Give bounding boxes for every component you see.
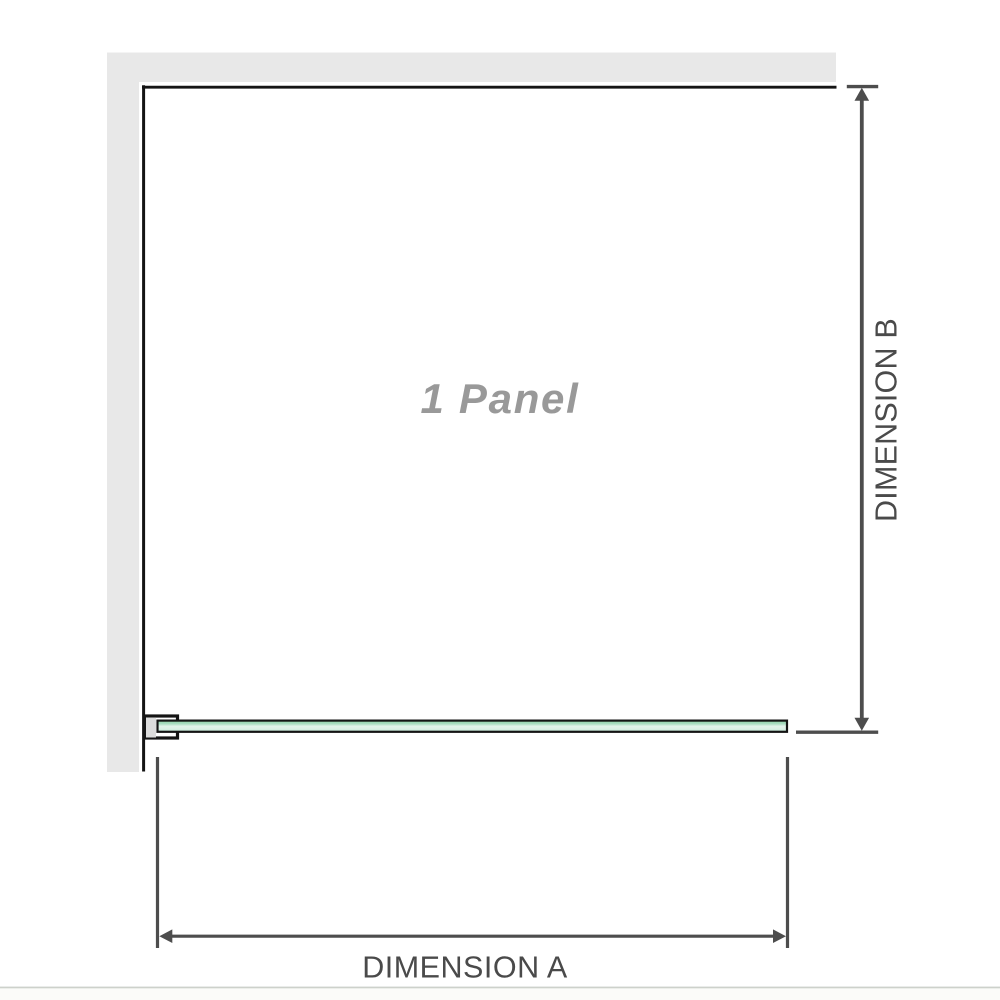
svg-text:DIMENSION A: DIMENSION A — [362, 951, 568, 985]
svg-text:DIMENSION B: DIMENSION B — [870, 318, 904, 522]
svg-text:1 Panel: 1 Panel — [421, 375, 580, 422]
